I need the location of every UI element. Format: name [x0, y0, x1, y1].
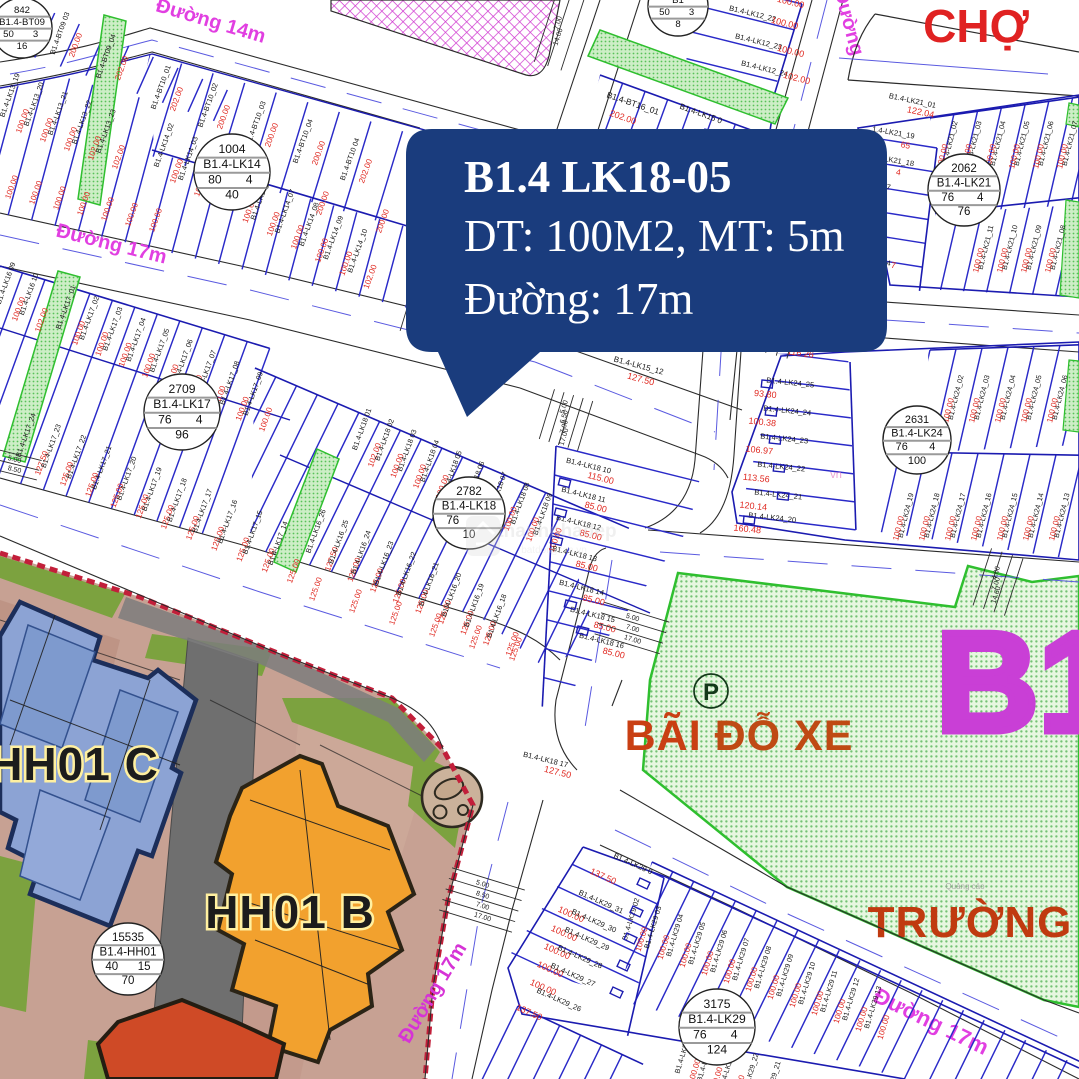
- svg-text:70: 70: [122, 975, 135, 987]
- svg-text:B1.4-BT09: B1.4-BT09: [0, 17, 45, 28]
- svg-text:3: 3: [689, 7, 694, 18]
- svg-text:80: 80: [208, 172, 222, 186]
- svg-text:B1: B1: [936, 603, 1079, 762]
- svg-text:B1.4-HH01: B1.4-HH01: [100, 946, 157, 958]
- svg-text:2709: 2709: [168, 382, 195, 396]
- svg-text:HH01 C: HH01 C: [0, 738, 159, 790]
- svg-text:3: 3: [33, 29, 38, 40]
- svg-text:124: 124: [707, 1043, 728, 1057]
- svg-text:76: 76: [958, 206, 971, 218]
- svg-text:76: 76: [693, 1027, 707, 1041]
- svg-text:4: 4: [731, 1027, 738, 1041]
- svg-text:40: 40: [225, 188, 239, 202]
- svg-text:4: 4: [246, 172, 253, 186]
- svg-text:B1.4-LK14: B1.4-LK14: [203, 157, 261, 171]
- svg-text:76: 76: [446, 515, 459, 527]
- svg-text:CHỢ: CHỢ: [923, 0, 1029, 52]
- svg-text:2782: 2782: [456, 486, 482, 498]
- svg-text:3175: 3175: [703, 997, 730, 1011]
- svg-text:B1.4-LK18: B1.4-LK18: [442, 500, 496, 512]
- svg-text:50: 50: [659, 7, 670, 18]
- svg-text:B1.4-LK17: B1.4-LK17: [153, 397, 211, 411]
- svg-text:50: 50: [3, 29, 14, 40]
- svg-text:B1: B1: [672, 0, 684, 6]
- svg-text:4: 4: [196, 412, 203, 426]
- svg-text:842: 842: [14, 5, 30, 16]
- svg-text:4: 4: [929, 441, 935, 453]
- svg-text:2062: 2062: [951, 163, 977, 175]
- svg-text:batdongsan.vn: batdongsan.vn: [521, 545, 587, 556]
- svg-text:15: 15: [138, 961, 151, 973]
- svg-text:B1.4-LK21: B1.4-LK21: [937, 177, 991, 189]
- svg-text:thanhnhadep: thanhnhadep: [497, 521, 616, 542]
- svg-text:96: 96: [175, 428, 189, 442]
- svg-text:2631: 2631: [905, 414, 929, 426]
- svg-text:16: 16: [17, 41, 28, 52]
- svg-text:100: 100: [908, 455, 926, 467]
- svg-text:Quảng cáo: Quảng cáo: [945, 882, 985, 891]
- svg-text:76: 76: [158, 412, 172, 426]
- svg-text:8: 8: [675, 19, 680, 30]
- svg-text:TRƯỜNG: TRƯỜNG: [868, 897, 1073, 947]
- svg-text:HH01 B: HH01 B: [205, 886, 375, 938]
- svg-text:15535: 15535: [112, 932, 144, 944]
- svg-text:B1.4 LK18-05: B1.4 LK18-05: [464, 152, 732, 202]
- svg-text:P: P: [703, 679, 719, 706]
- svg-text:B1.4-LK24: B1.4-LK24: [891, 428, 942, 440]
- svg-text:40: 40: [105, 961, 118, 973]
- svg-text:B1.4-LK29: B1.4-LK29: [688, 1012, 746, 1026]
- svg-text:65: 65: [900, 139, 911, 151]
- svg-text:BÃI ĐỖ XE: BÃI ĐỖ XE: [625, 711, 854, 760]
- svg-text:DT: 100M2, MT: 5m: DT: 100M2, MT: 5m: [464, 211, 845, 261]
- svg-text:76: 76: [941, 192, 954, 204]
- svg-text:76: 76: [896, 441, 908, 453]
- svg-text:vn: vn: [830, 469, 842, 481]
- svg-text:Đường: 17m: Đường: 17m: [464, 274, 693, 324]
- svg-text:1004: 1004: [218, 142, 245, 156]
- svg-text:4: 4: [977, 192, 984, 204]
